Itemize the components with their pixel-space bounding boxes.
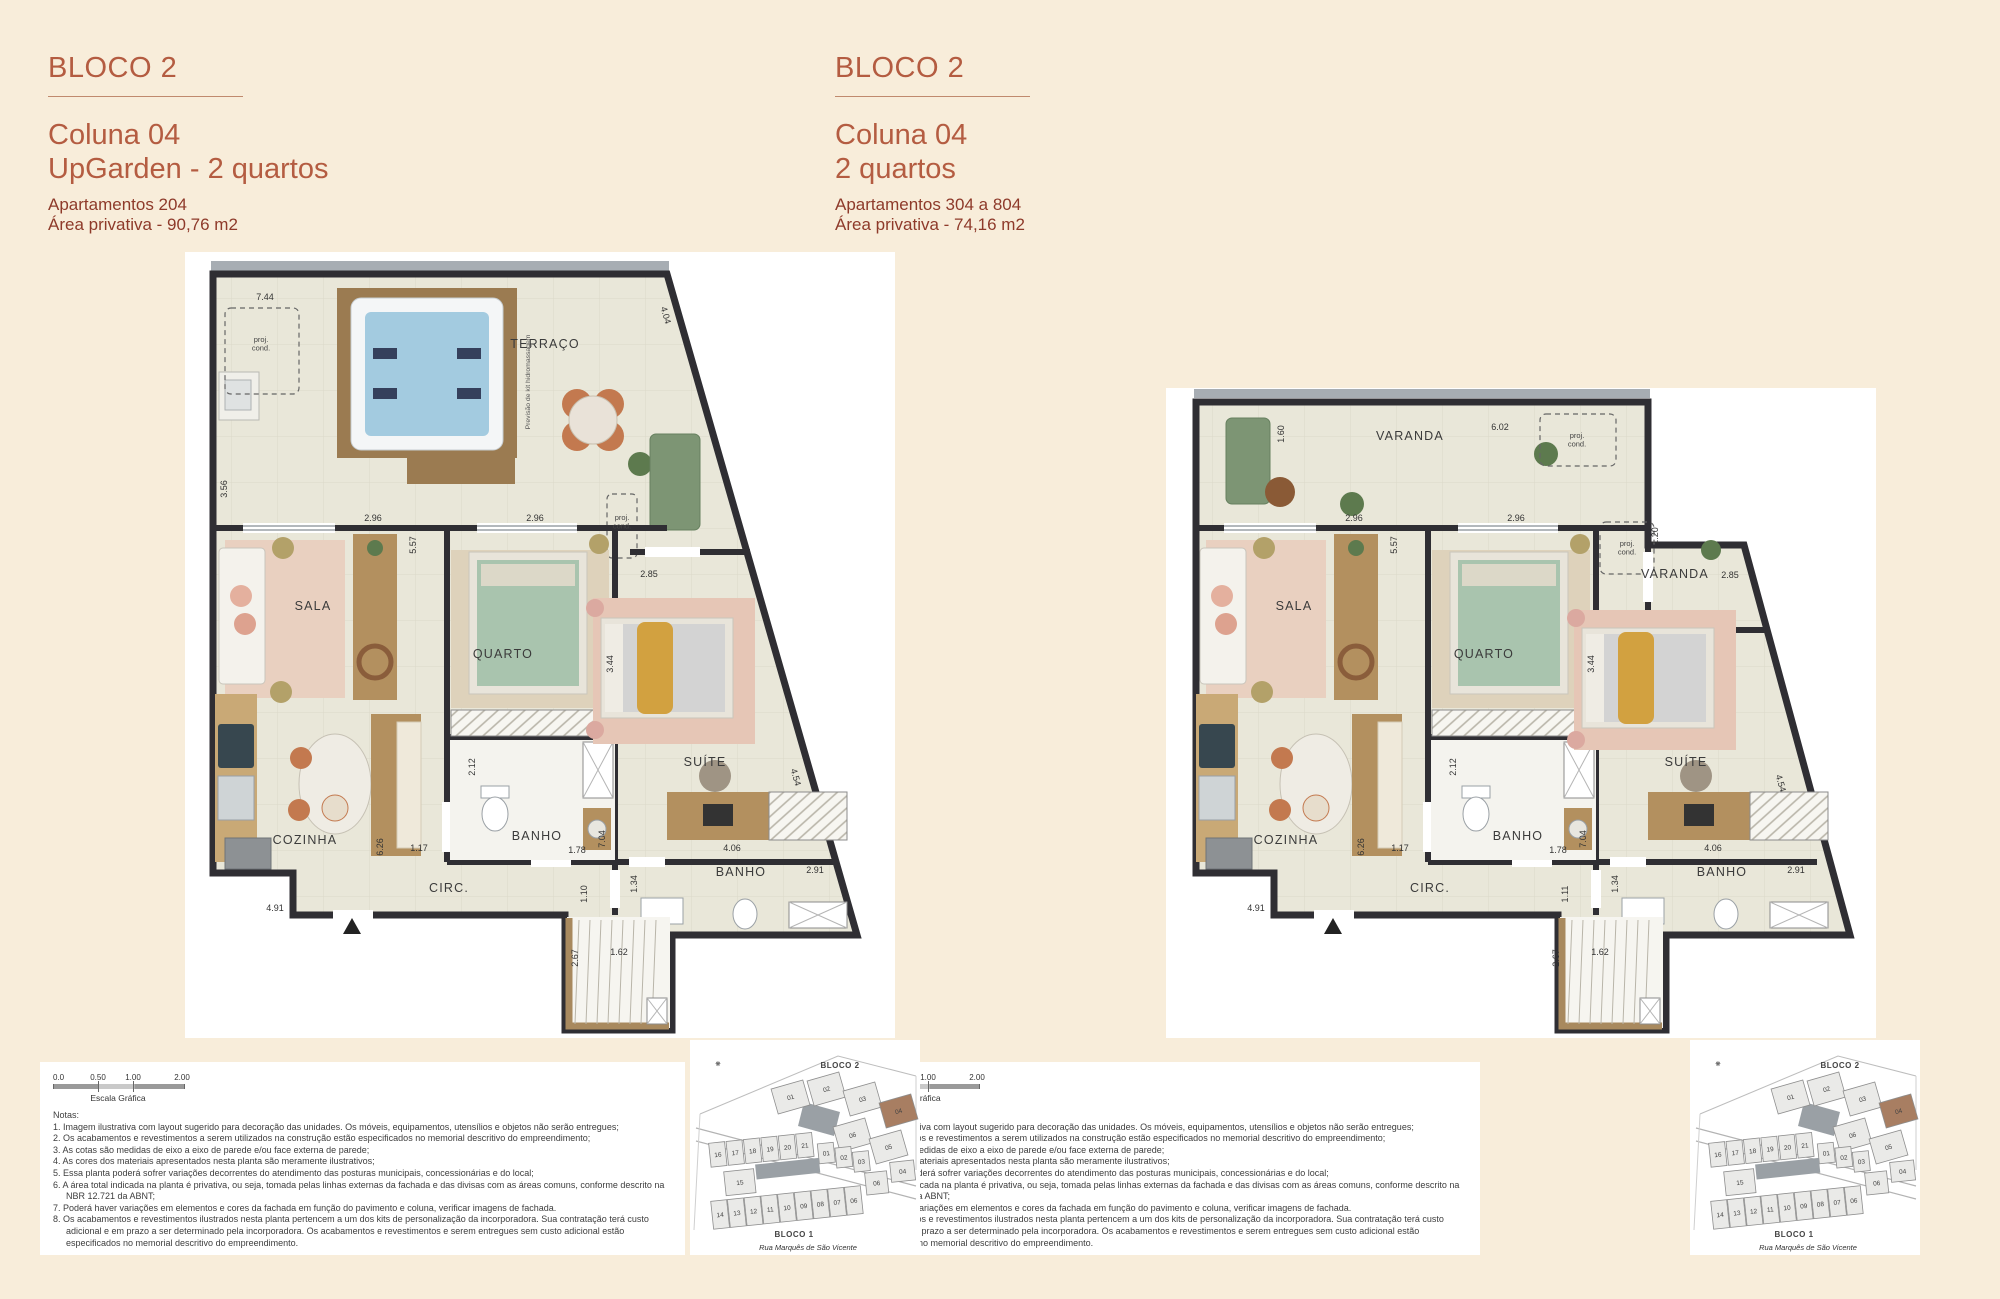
- throw-blanket: [637, 622, 673, 714]
- note-item: 8. Os acabamentos e revestimentos ilustr…: [848, 1214, 1467, 1249]
- appliance: [225, 838, 271, 869]
- site-unit-02: 02: [807, 1072, 846, 1106]
- left-panel-header: BLOCO 2 Coluna 04 UpGarden - 2 quartos A…: [48, 52, 508, 235]
- scale-caption: Escala Gráfica: [53, 1093, 183, 1103]
- bloco2-core: [798, 1102, 840, 1136]
- dim-label: 7.04: [597, 830, 607, 848]
- site-unit-label: 14: [1716, 1212, 1724, 1220]
- site-unit-14: 14: [1711, 1200, 1730, 1230]
- bedroom-furniture: [1432, 534, 1590, 736]
- site-unit-14: 14: [711, 1200, 730, 1230]
- site-unit-13: 13: [727, 1198, 746, 1228]
- room-label: SALA: [295, 599, 332, 613]
- kitchen-sink: [218, 776, 254, 820]
- room-label: COZINHA: [1254, 833, 1319, 847]
- site-unit-06: 06: [1865, 1171, 1889, 1195]
- dim-label: 3.44: [1586, 655, 1596, 673]
- kitchen-sink: [1199, 776, 1235, 820]
- site-unit-label: 14: [716, 1212, 724, 1220]
- apartments-line: Apartamentos 204: [48, 195, 508, 215]
- stairs: [567, 917, 670, 1028]
- stairs: [1560, 917, 1663, 1028]
- site-unit-21: 21: [796, 1132, 814, 1158]
- site-unit-02: 02: [835, 1146, 853, 1168]
- bloco1-map-label: BLOCO 1: [774, 1230, 813, 1239]
- side-table: [270, 681, 292, 703]
- side-table: [272, 537, 294, 559]
- room-label: SALA: [1276, 599, 1313, 613]
- room-label: BANHO: [716, 865, 766, 879]
- note-item: 4. As cores dos materiais apresentados n…: [53, 1156, 672, 1168]
- site-unit-label: 02: [1840, 1154, 1848, 1162]
- site-unit-label: 17: [1731, 1150, 1739, 1158]
- bedside-table: [589, 534, 609, 554]
- toilet: [482, 797, 508, 831]
- site-unit-15: 15: [724, 1169, 756, 1196]
- notes-title: Notas:: [53, 1110, 672, 1122]
- site-unit-17: 17: [1726, 1140, 1744, 1166]
- dim-label: 1.78: [1549, 845, 1567, 855]
- cushion: [1215, 613, 1237, 635]
- site-unit-04: 04: [890, 1160, 916, 1182]
- appliance: [1206, 838, 1252, 869]
- site-unit-10: 10: [1778, 1193, 1797, 1223]
- dim-label: 5.57: [1389, 536, 1399, 554]
- note-item: 6. A área total indicada na planta é pri…: [53, 1180, 672, 1203]
- site-unit-label: 16: [1714, 1151, 1722, 1159]
- wardrobe: [1750, 792, 1828, 840]
- tree-icon: ❋: [715, 1060, 721, 1068]
- plant-icon: [367, 540, 383, 556]
- site-unit-label: 02: [840, 1154, 848, 1162]
- site-unit-16: 16: [1709, 1142, 1727, 1168]
- dim-label: 2.67: [1551, 949, 1561, 967]
- site-unit-label: 18: [749, 1148, 757, 1156]
- dim-label: 1.10: [579, 885, 589, 903]
- dim-label: 3.44: [605, 655, 615, 673]
- dim-label: 1.17: [410, 843, 428, 853]
- site-unit-01: 01: [817, 1142, 835, 1164]
- dim-label: proj.cond.: [252, 335, 270, 353]
- cushion: [234, 613, 256, 635]
- brochure-page: BLOCO 2 Coluna 04 UpGarden - 2 quartos A…: [0, 0, 2000, 1299]
- room-label: VARANDA: [1641, 567, 1709, 581]
- notes-list: 1. Imagem ilustrativa com layout sugerid…: [53, 1122, 672, 1250]
- scale-ticks: 0.0 0.50 1.00 2.00: [53, 1073, 188, 1083]
- dim-label: 4.06: [1704, 843, 1722, 853]
- title-underline: [835, 96, 1030, 97]
- site-unit-09: 09: [1794, 1191, 1813, 1221]
- site-unit-11: 11: [1761, 1194, 1780, 1224]
- bloco2-map-label: BLOCO 2: [820, 1061, 859, 1070]
- site-unit-label: 07: [1833, 1199, 1841, 1207]
- note-item: 5. Essa planta poderá sofrer variações d…: [53, 1168, 672, 1180]
- site-unit-07: 07: [1828, 1187, 1847, 1217]
- dim-label: 7.44: [256, 292, 274, 302]
- site-unit-21: 21: [1796, 1132, 1814, 1158]
- table-setting: [1303, 795, 1329, 821]
- site-unit-01: 01: [1817, 1142, 1835, 1164]
- room-label: TERRAÇO: [510, 337, 580, 351]
- apartments-line: Apartamentos 304 a 804: [835, 195, 1295, 215]
- site-unit-03: 03: [1852, 1151, 1870, 1173]
- site-unit-label: 20: [1784, 1144, 1792, 1152]
- floor-plan-right: VARANDAVARANDASALAQUARTOSUÍTECOZINHABANH…: [1166, 388, 1876, 1038]
- living-room-furniture: [1200, 534, 1378, 703]
- dim-label: 1.34: [629, 875, 639, 893]
- wardrobe: [769, 792, 847, 840]
- site-unit-03: 03: [1843, 1082, 1882, 1116]
- dim-label: 2.12: [1448, 758, 1458, 776]
- site-unit-08: 08: [1811, 1189, 1830, 1219]
- laptop: [703, 804, 733, 826]
- cushion: [230, 585, 252, 607]
- site-unit-label: 11: [767, 1206, 775, 1214]
- wardrobe: [451, 710, 609, 736]
- site-unit-label: 03: [857, 1159, 865, 1167]
- notes-list: 1. Imagem ilustrativa com layout sugerid…: [848, 1122, 1467, 1250]
- column-title: Coluna 04 2 quartos: [835, 118, 1295, 186]
- dim-label: 2.67: [570, 949, 580, 967]
- street-name-label: Rua Marquês de São Vicente: [759, 1243, 857, 1252]
- apartment-details: Apartamentos 304 a 804 Área privativa - …: [835, 195, 1295, 235]
- column-title: Coluna 04 UpGarden - 2 quartos: [48, 118, 508, 186]
- scale-tick-label: 2.00: [969, 1073, 985, 1082]
- dim-label: 1.34: [1610, 875, 1620, 893]
- note-item: 1. Imagem ilustrativa com layout sugerid…: [848, 1122, 1467, 1134]
- column-title-line2: UpGarden - 2 quartos: [48, 152, 508, 186]
- site-unit-19: 19: [761, 1136, 779, 1162]
- site-unit-04: 04: [879, 1094, 918, 1128]
- site-unit-label: 04: [1899, 1168, 1907, 1176]
- site-unit-label: 08: [817, 1201, 825, 1209]
- tree-icon: ❋: [1715, 1060, 1721, 1068]
- room-label: CIRC.: [429, 881, 469, 895]
- dim-label: 1.78: [568, 845, 586, 855]
- note-item: 2. Os acabamentos e revestimentos a sere…: [848, 1133, 1467, 1145]
- wardrobe: [1432, 710, 1590, 736]
- column-title-line1: Coluna 04: [48, 118, 508, 152]
- street-name-label: Rua Marquês de São Vicente: [1759, 1243, 1857, 1252]
- bench-cushion: [1378, 722, 1402, 848]
- note-item: 4. As cores dos materiais apresentados n…: [848, 1156, 1467, 1168]
- room-label: VARANDA: [1376, 429, 1444, 443]
- room-label: SUÍTE: [1665, 754, 1708, 769]
- wood-console: [1334, 534, 1378, 700]
- site-unit-label: 19: [1766, 1146, 1774, 1154]
- toilet-tank: [1462, 786, 1490, 798]
- dim-label: 2.96: [364, 513, 382, 523]
- toilet-tank: [481, 786, 509, 798]
- side-table: [1253, 537, 1275, 559]
- site-unit-label: 12: [750, 1208, 758, 1216]
- dim-label: proj.cond.: [1568, 431, 1586, 449]
- dim-label: 2.91: [806, 865, 824, 875]
- block-title: BLOCO 2: [835, 52, 1295, 85]
- laptop: [1684, 804, 1714, 826]
- dim-label: 2.85: [1721, 570, 1739, 580]
- suite-bathroom-fixtures: [641, 898, 847, 929]
- column-title-line2: 2 quartos: [835, 152, 1295, 186]
- room-label: BANHO: [1697, 865, 1747, 879]
- note-item: 8. Os acabamentos e revestimentos ilustr…: [53, 1214, 672, 1249]
- dim-label: 1.62: [1591, 947, 1609, 957]
- scale-bar: [53, 1084, 185, 1089]
- terrace-sofa: [650, 434, 700, 530]
- site-unit-20: 20: [1778, 1134, 1796, 1160]
- site-unit-03: 03: [843, 1082, 882, 1116]
- graphic-scale: 0.0 0.50 1.00 2.00 Escala Gráfica: [53, 1073, 203, 1103]
- dim-label: 2.12: [467, 758, 477, 776]
- note-item: 1. Imagem ilustrativa com layout sugerid…: [53, 1122, 672, 1134]
- site-unit-06: 06: [865, 1171, 889, 1195]
- dim-label: 4.06: [723, 843, 741, 853]
- dim-label: 1.60: [1276, 425, 1286, 443]
- note-item: 7. Poderá haver variações em elementos e…: [53, 1203, 672, 1215]
- note-item: 6. A área total indicada na planta é pri…: [848, 1180, 1467, 1203]
- private-area-line: Área privativa - 90,76 m2: [48, 215, 508, 235]
- site-unit-label: 16: [714, 1151, 722, 1159]
- room-label: SUÍTE: [684, 754, 727, 769]
- table-setting: [322, 795, 348, 821]
- notes-box-right: 0.0 0.50 1.00 2.00 Escala Gráfica Notas:…: [835, 1062, 1480, 1255]
- toilet: [1714, 899, 1738, 929]
- dim-label: Previsão de kit hidromassagem: [525, 334, 532, 429]
- dim-label: 6.02: [1491, 422, 1509, 432]
- site-unit-13: 13: [1727, 1198, 1746, 1228]
- site-unit-label: 19: [766, 1146, 774, 1154]
- site-unit-label: 01: [822, 1150, 830, 1158]
- site-unit-18: 18: [743, 1138, 761, 1164]
- site-unit-label: 01: [1822, 1150, 1830, 1158]
- wood-console: [353, 534, 397, 700]
- bedside-lamp: [1567, 731, 1585, 749]
- dim-label: 2.96: [1507, 513, 1525, 523]
- dim-label: 1.62: [610, 947, 628, 957]
- site-unit-02: 02: [1807, 1072, 1846, 1106]
- note-item: 5. Essa planta poderá sofrer variações d…: [848, 1168, 1467, 1180]
- dim-label: 6.26: [1356, 838, 1366, 856]
- site-unit-17: 17: [726, 1140, 744, 1166]
- dim-label: 2.96: [1345, 513, 1363, 523]
- site-map-svg: ❋010203040605BLOCO 216171819202101020315…: [1690, 1040, 1920, 1255]
- note-item: 3. As cotas são medidas de eixo a eixo d…: [53, 1145, 672, 1157]
- site-unit-15: 15: [1724, 1169, 1756, 1196]
- site-unit-label: 17: [731, 1150, 739, 1158]
- dim-label: 1.17: [1391, 843, 1409, 853]
- site-unit-20: 20: [778, 1134, 796, 1160]
- site-unit-19: 19: [1761, 1136, 1779, 1162]
- living-room-furniture: [219, 534, 397, 703]
- site-unit-label: 10: [1783, 1205, 1791, 1213]
- room-label: QUARTO: [1454, 647, 1514, 661]
- sidewalk-band: [1194, 389, 1650, 398]
- title-underline: [48, 96, 243, 97]
- bedside-table: [1570, 534, 1590, 554]
- balcony-sofa: [1226, 418, 1270, 504]
- note-item: 3. As cotas são medidas de eixo a eixo d…: [848, 1145, 1467, 1157]
- site-unit-label: 21: [1801, 1142, 1809, 1150]
- site-unit-label: 20: [784, 1144, 792, 1152]
- room-label: CIRC.: [1410, 881, 1450, 895]
- site-map-left: ❋010203040605BLOCO 216171819202101020315…: [690, 1040, 920, 1255]
- site-unit-label: 13: [733, 1210, 741, 1218]
- hot-tub-water: [365, 312, 489, 436]
- deck-step: [407, 458, 515, 484]
- dim-label: 4.91: [266, 903, 284, 913]
- chair: [288, 799, 310, 821]
- pillows: [1586, 634, 1604, 722]
- site-unit-06: 06: [1844, 1186, 1863, 1216]
- dim-label: 2.91: [1787, 865, 1805, 875]
- site-unit-label: 07: [833, 1199, 841, 1207]
- site-unit-label: 08: [1817, 1201, 1825, 1209]
- site-unit-label: 03: [1857, 1159, 1865, 1167]
- pillows: [1462, 564, 1556, 586]
- site-unit-18: 18: [1743, 1138, 1761, 1164]
- site-unit-06: 06: [833, 1118, 872, 1152]
- site-unit-07: 07: [828, 1187, 847, 1217]
- site-map-svg: ❋010203040605BLOCO 216171819202101020315…: [690, 1040, 920, 1255]
- throw-blanket: [1618, 632, 1654, 724]
- note-item: 2. Os acabamentos e revestimentos a sere…: [53, 1133, 672, 1145]
- side-table: [1251, 681, 1273, 703]
- notes-box-left: 0.0 0.50 1.00 2.00 Escala Gráfica Notas:…: [40, 1062, 685, 1255]
- dim-label: 4.91: [1247, 903, 1265, 913]
- right-panel-header: BLOCO 2 Coluna 04 2 quartos Apartamentos…: [835, 52, 1295, 235]
- room-label: QUARTO: [473, 647, 533, 661]
- cooktop: [218, 724, 254, 768]
- site-unit-label: 06: [873, 1180, 881, 1188]
- site-unit-10: 10: [778, 1193, 797, 1223]
- site-unit-02: 02: [1835, 1146, 1853, 1168]
- room-label: BANHO: [512, 829, 562, 843]
- site-unit-03: 03: [852, 1151, 870, 1173]
- sink-basin: [225, 380, 251, 410]
- site-unit-05: 05: [1869, 1130, 1908, 1164]
- site-unit-label: 06: [1873, 1180, 1881, 1188]
- dim-label: 5.57: [408, 536, 418, 554]
- private-area-line: Área privativa - 74,16 m2: [835, 215, 1295, 235]
- bloco2-core: [1798, 1102, 1840, 1136]
- site-unit-label: 04: [899, 1168, 907, 1176]
- round-table: [1265, 477, 1295, 507]
- floor-plan-right-canvas: VARANDAVARANDASALAQUARTOSUÍTECOZINHABANH…: [1166, 388, 1876, 1038]
- toilet: [1463, 797, 1489, 831]
- site-unit-11: 11: [761, 1194, 780, 1224]
- plant-icon: [1534, 442, 1558, 466]
- site-unit-16: 16: [709, 1142, 727, 1168]
- site-unit-label: 15: [736, 1179, 744, 1187]
- site-unit-label: 10: [783, 1205, 791, 1213]
- site-unit-label: 12: [1750, 1208, 1758, 1216]
- room-label: BANHO: [1493, 829, 1543, 843]
- site-unit-04: 04: [1890, 1160, 1916, 1182]
- dim-label: 3.56: [219, 480, 229, 498]
- site-map-right: ❋010203040605BLOCO 216171819202101020315…: [1690, 1040, 1920, 1255]
- bedside-lamp: [586, 721, 604, 739]
- plant-icon: [628, 452, 652, 476]
- site-unit-label: 09: [1800, 1203, 1808, 1211]
- floor-plan-left: TERRAÇOSALAQUARTOSUÍTECOZINHABANHOCIRC.B…: [185, 252, 895, 1038]
- bloco2-map-label: BLOCO 2: [1820, 1061, 1859, 1070]
- site-unit-04: 04: [1879, 1094, 1918, 1128]
- floor-plan-left-canvas: TERRAÇOSALAQUARTOSUÍTECOZINHABANHOCIRC.B…: [185, 252, 895, 1038]
- dim-label: 2.96: [526, 513, 544, 523]
- site-unit-06: 06: [844, 1186, 863, 1216]
- cooktop: [1199, 724, 1235, 768]
- site-unit-08: 08: [811, 1189, 830, 1219]
- chair: [290, 747, 312, 769]
- dim-label: 6.26: [375, 838, 385, 856]
- site-unit-12: 12: [1744, 1196, 1763, 1226]
- chair: [1269, 799, 1291, 821]
- bedside-lamp: [1567, 609, 1585, 627]
- scale-tick-label: 0.0: [53, 1073, 64, 1082]
- note-item: 7. Poderá haver variações em elementos e…: [848, 1203, 1467, 1215]
- dim-label: proj.cond.: [1618, 539, 1636, 557]
- site-unit-label: 18: [1749, 1148, 1757, 1156]
- dim-label: 2.85: [640, 569, 658, 579]
- site-unit-label: 13: [1733, 1210, 1741, 1218]
- site-unit-label: 15: [1736, 1179, 1744, 1187]
- room-label: COZINHA: [273, 833, 338, 847]
- site-unit-label: 06: [1850, 1198, 1858, 1206]
- notes-title: Notas:: [848, 1110, 1467, 1122]
- site-unit-label: 21: [801, 1142, 809, 1150]
- site-unit-09: 09: [794, 1191, 813, 1221]
- site-unit-label: 09: [800, 1203, 808, 1211]
- site-unit-06: 06: [1833, 1118, 1872, 1152]
- site-unit-label: 06: [850, 1198, 858, 1206]
- pillows: [481, 564, 575, 586]
- dim-label: 7.04: [1578, 830, 1588, 848]
- dim-label: proj.cond.: [613, 513, 631, 531]
- bedroom-furniture: [451, 534, 609, 736]
- dim-label: 1.20: [1650, 527, 1660, 545]
- bloco1-map-label: BLOCO 1: [1774, 1230, 1813, 1239]
- cushion: [1211, 585, 1233, 607]
- scale-tick-label: 2.00: [174, 1073, 190, 1082]
- bench-cushion: [397, 722, 421, 848]
- apartment-details: Apartamentos 204 Área privativa - 90,76 …: [48, 195, 508, 235]
- block-title: BLOCO 2: [48, 52, 508, 85]
- terrace-table-set: [562, 389, 624, 451]
- plant-icon: [1348, 540, 1364, 556]
- sidewalk-band: [211, 261, 669, 271]
- site-unit-label: 11: [1767, 1206, 1775, 1214]
- chair: [1271, 747, 1293, 769]
- toilet: [733, 899, 757, 929]
- dim-label: 1.11: [1560, 886, 1570, 903]
- column-title-line1: Coluna 04: [835, 118, 1295, 152]
- plant-icon: [1701, 540, 1721, 560]
- bedside-lamp: [586, 599, 604, 617]
- site-unit-12: 12: [744, 1196, 763, 1226]
- site-unit-05: 05: [869, 1130, 908, 1164]
